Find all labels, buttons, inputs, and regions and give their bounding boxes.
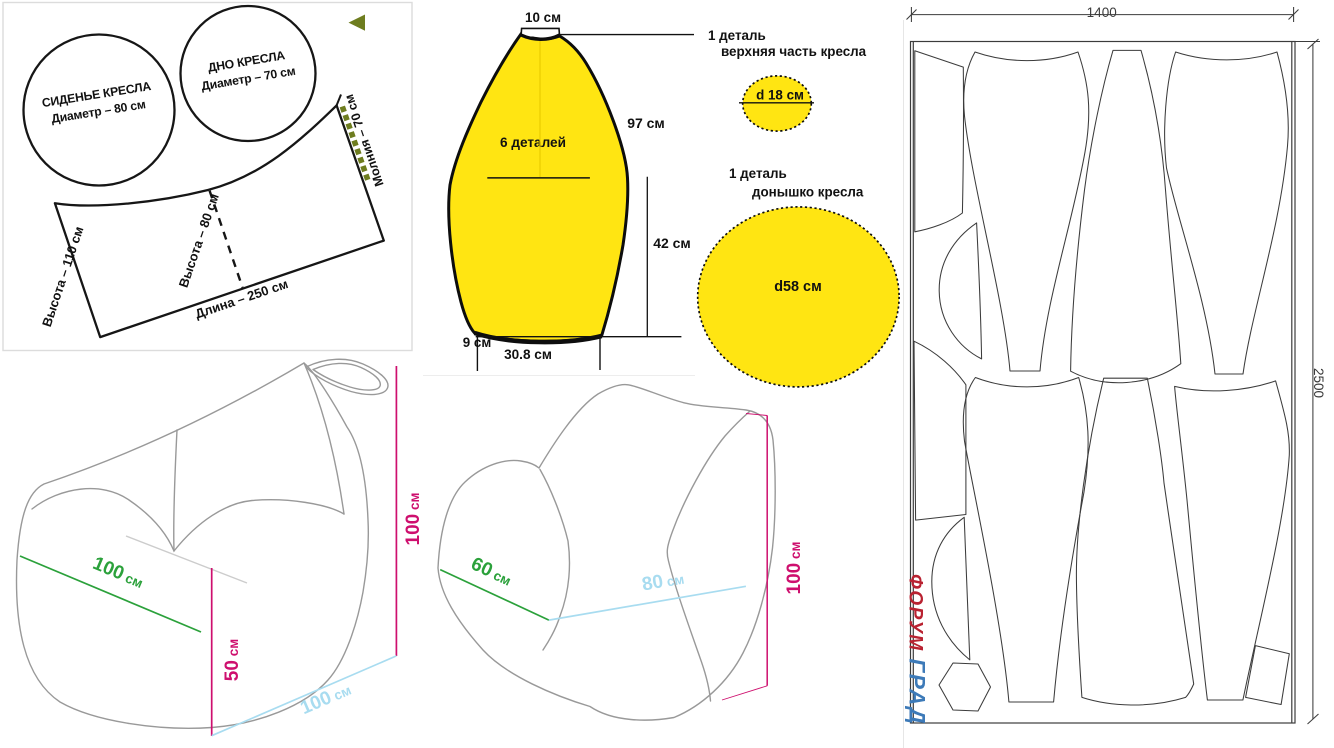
svg-text:1 деталь: 1 деталь <box>729 166 787 181</box>
svg-text:6 деталей: 6 деталей <box>500 135 566 150</box>
svg-text:10 см: 10 см <box>525 10 561 25</box>
svg-text:1400: 1400 <box>1087 5 1117 20</box>
svg-text:2500: 2500 <box>1311 368 1326 398</box>
svg-text:50 см: 50 см <box>222 639 243 681</box>
svg-text:d 18 см: d 18 см <box>756 88 804 103</box>
svg-text:100 см: 100 см <box>403 493 424 546</box>
svg-text:ФОРУМ ГРАД: ФОРУМ ГРАД <box>905 574 930 725</box>
svg-text:донышко кресла: донышко кресла <box>752 185 864 200</box>
svg-text:9 см: 9 см <box>463 335 492 350</box>
svg-text:1 деталь: 1 деталь <box>708 28 766 43</box>
svg-text:100 см: 100 см <box>784 542 805 595</box>
svg-text:d58 см: d58 см <box>774 279 821 295</box>
svg-text:30.8 см: 30.8 см <box>504 347 552 362</box>
svg-text:верхняя часть кресла: верхняя часть кресла <box>721 44 867 59</box>
svg-text:97 см: 97 см <box>627 115 665 131</box>
svg-text:42 см: 42 см <box>653 235 691 251</box>
